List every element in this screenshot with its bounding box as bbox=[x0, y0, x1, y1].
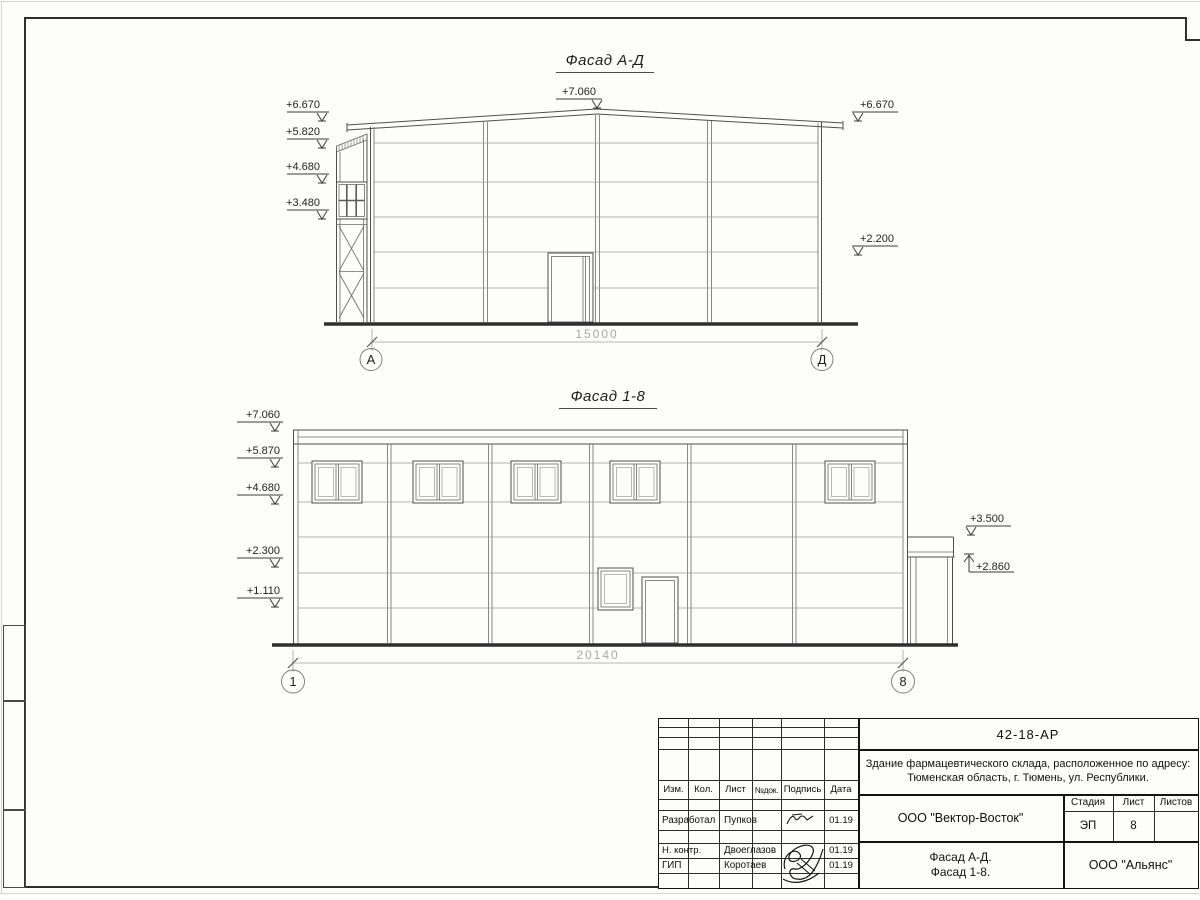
facade-ad-stair-annex bbox=[337, 134, 368, 322]
facade-ad-walls bbox=[371, 115, 822, 322]
facade-ad-roof bbox=[347, 109, 843, 132]
signature-gip-nkontr bbox=[777, 835, 829, 887]
facade-ad-dimension: 15000 bbox=[367, 327, 827, 351]
svg-text:+7.060: +7.060 bbox=[246, 409, 280, 421]
svg-text:+2.200: +2.200 bbox=[860, 233, 894, 245]
facade-18-window-2 bbox=[413, 461, 463, 503]
facade-ad-annex-bracing bbox=[339, 226, 364, 318]
svg-text:+3.500: +3.500 bbox=[970, 513, 1004, 525]
facade-18-window-3 bbox=[511, 461, 561, 503]
tb-line bbox=[659, 727, 858, 728]
tb-sheet-title: Фасад А-Д. Фасад 1-8. bbox=[858, 841, 1063, 897]
facade-ad-door bbox=[548, 253, 593, 322]
facade-18-window-1 bbox=[312, 461, 362, 503]
tb-stage-value: ЭП bbox=[1063, 811, 1113, 841]
tb-line bbox=[659, 749, 858, 750]
tb-line bbox=[858, 749, 1198, 751]
svg-text:+7.060: +7.060 bbox=[562, 86, 596, 98]
tb-date-2: 01.19 bbox=[824, 843, 858, 858]
facade-18-small-window bbox=[598, 568, 633, 610]
tb-line bbox=[659, 799, 858, 800]
tb-line bbox=[659, 830, 858, 831]
tb-col-kol: Кол. bbox=[688, 780, 719, 799]
axis-label-8: 8 bbox=[899, 674, 906, 689]
facade-18-walls bbox=[293, 430, 908, 645]
svg-text:+3.480: +3.480 bbox=[286, 197, 320, 209]
axis-label-a: А bbox=[367, 352, 376, 367]
svg-text:+6.670: +6.670 bbox=[860, 99, 894, 111]
tb-col-podpis: Подпись bbox=[781, 780, 824, 799]
tb-document-code: 42-18-АР bbox=[858, 719, 1198, 749]
tb-line bbox=[659, 737, 858, 738]
tb-client-name: ООО "Альянс" bbox=[1063, 841, 1198, 888]
axis-label-d: Д bbox=[818, 352, 827, 367]
facade-18-window-4 bbox=[610, 461, 660, 503]
facade-18-porch-annex bbox=[908, 537, 955, 645]
tb-sheet-title-line-1: Фасад А-Д. bbox=[858, 850, 1063, 865]
svg-text:+2.860: +2.860 bbox=[976, 561, 1010, 573]
tb-description-line-1: Здание фармацевтического склада, располо… bbox=[858, 757, 1198, 771]
tb-col-izm: Изм. bbox=[659, 780, 688, 799]
axis-label-1: 1 bbox=[289, 674, 296, 689]
facade-18: 20140 1 8 +7.060 +5.870 +4.680 bbox=[237, 409, 1014, 693]
tb-contractor-name: ООО "Вектор-Восток" bbox=[858, 794, 1063, 841]
tb-stage-label: Стадия bbox=[1063, 794, 1113, 811]
tb-role-gip: ГИП bbox=[659, 858, 722, 873]
tb-description-line-2: Тюменская область, г. Тюмень, ул. Респуб… bbox=[858, 771, 1198, 785]
tb-sheets-total bbox=[1154, 811, 1198, 841]
tb-sheet-number: 8 bbox=[1113, 811, 1154, 841]
tb-col-list: Лист bbox=[719, 780, 752, 799]
facade-18-door bbox=[642, 577, 678, 643]
svg-text:+6.670: +6.670 bbox=[286, 99, 320, 111]
title-block: Изм. Кол. Лист №док. Подпись Дата Разраб… bbox=[658, 718, 1199, 889]
tb-project-description: Здание фармацевтического склада, располо… bbox=[858, 752, 1198, 799]
facade-ad-axis-bubbles: А Д bbox=[360, 349, 833, 371]
facade-18-axis-bubbles: 1 8 bbox=[282, 670, 915, 693]
tb-date-1: 01.19 bbox=[824, 810, 858, 830]
tb-sheets-label: Листов bbox=[1154, 794, 1198, 811]
facade-ad-elevation-marks: +6.670 +5.820 +4.680 +3.480 +7.060 bbox=[286, 86, 898, 255]
svg-text:+4.680: +4.680 bbox=[246, 482, 280, 494]
svg-text:+4.680: +4.680 bbox=[286, 161, 320, 173]
tb-sheet-label: Лист bbox=[1113, 794, 1154, 811]
tb-col-ndok: №док. bbox=[752, 780, 781, 799]
facade-18-dim-text: 20140 bbox=[576, 648, 619, 662]
facade-ad-annex-window bbox=[337, 182, 368, 219]
tb-name-pupkov: Пупков bbox=[721, 810, 784, 830]
svg-text:+5.870: +5.870 bbox=[246, 445, 280, 457]
facade-ad: 15000 А Д +6.670 +5.820 +4.680 bbox=[286, 86, 898, 371]
tb-col-data: Дата bbox=[824, 780, 858, 799]
drawing-sheet: Фасад А-Д Фасад 1-8 bbox=[0, 0, 1200, 900]
svg-text:+5.820: +5.820 bbox=[286, 126, 320, 138]
svg-text:+1.110: +1.110 bbox=[247, 585, 280, 597]
svg-text:+2.300: +2.300 bbox=[246, 545, 280, 557]
signature-razrabotal bbox=[783, 811, 823, 829]
tb-date-3: 01.19 bbox=[824, 858, 858, 873]
tb-sheet-title-line-2: Фасад 1-8. bbox=[858, 865, 1063, 880]
tb-role-nkontr: Н. контр. bbox=[659, 843, 722, 858]
facade-18-dimension: 20140 bbox=[288, 648, 908, 672]
facade-ad-dim-text: 15000 bbox=[575, 327, 618, 341]
tb-role-razrabotal: Разработал bbox=[659, 810, 722, 830]
facade-18-window-5 bbox=[825, 461, 875, 503]
